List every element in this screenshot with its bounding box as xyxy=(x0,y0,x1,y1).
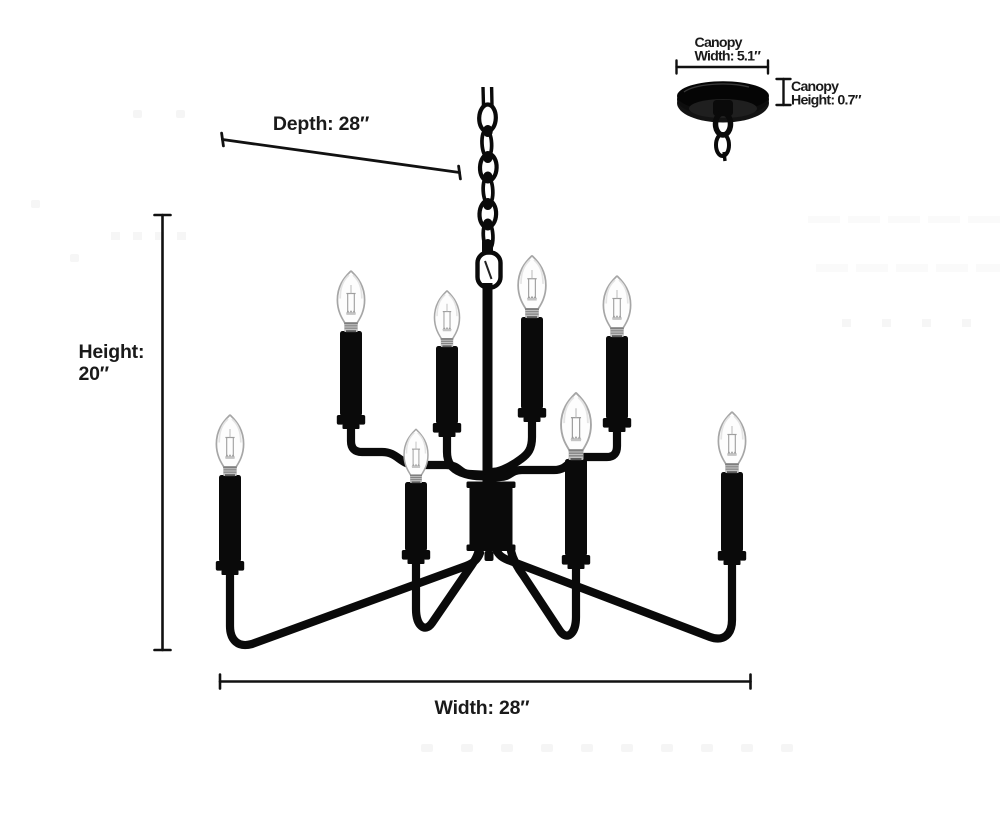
svg-text:Height:: Height: xyxy=(79,341,145,363)
svg-text:Height: 0.7″: Height: 0.7″ xyxy=(791,93,862,109)
svg-text:Width: 5.1″: Width: 5.1″ xyxy=(695,49,762,65)
svg-text:Depth: 28″: Depth: 28″ xyxy=(273,113,369,135)
svg-text:Width: 28″: Width: 28″ xyxy=(435,697,530,719)
svg-text:20″: 20″ xyxy=(79,363,109,385)
